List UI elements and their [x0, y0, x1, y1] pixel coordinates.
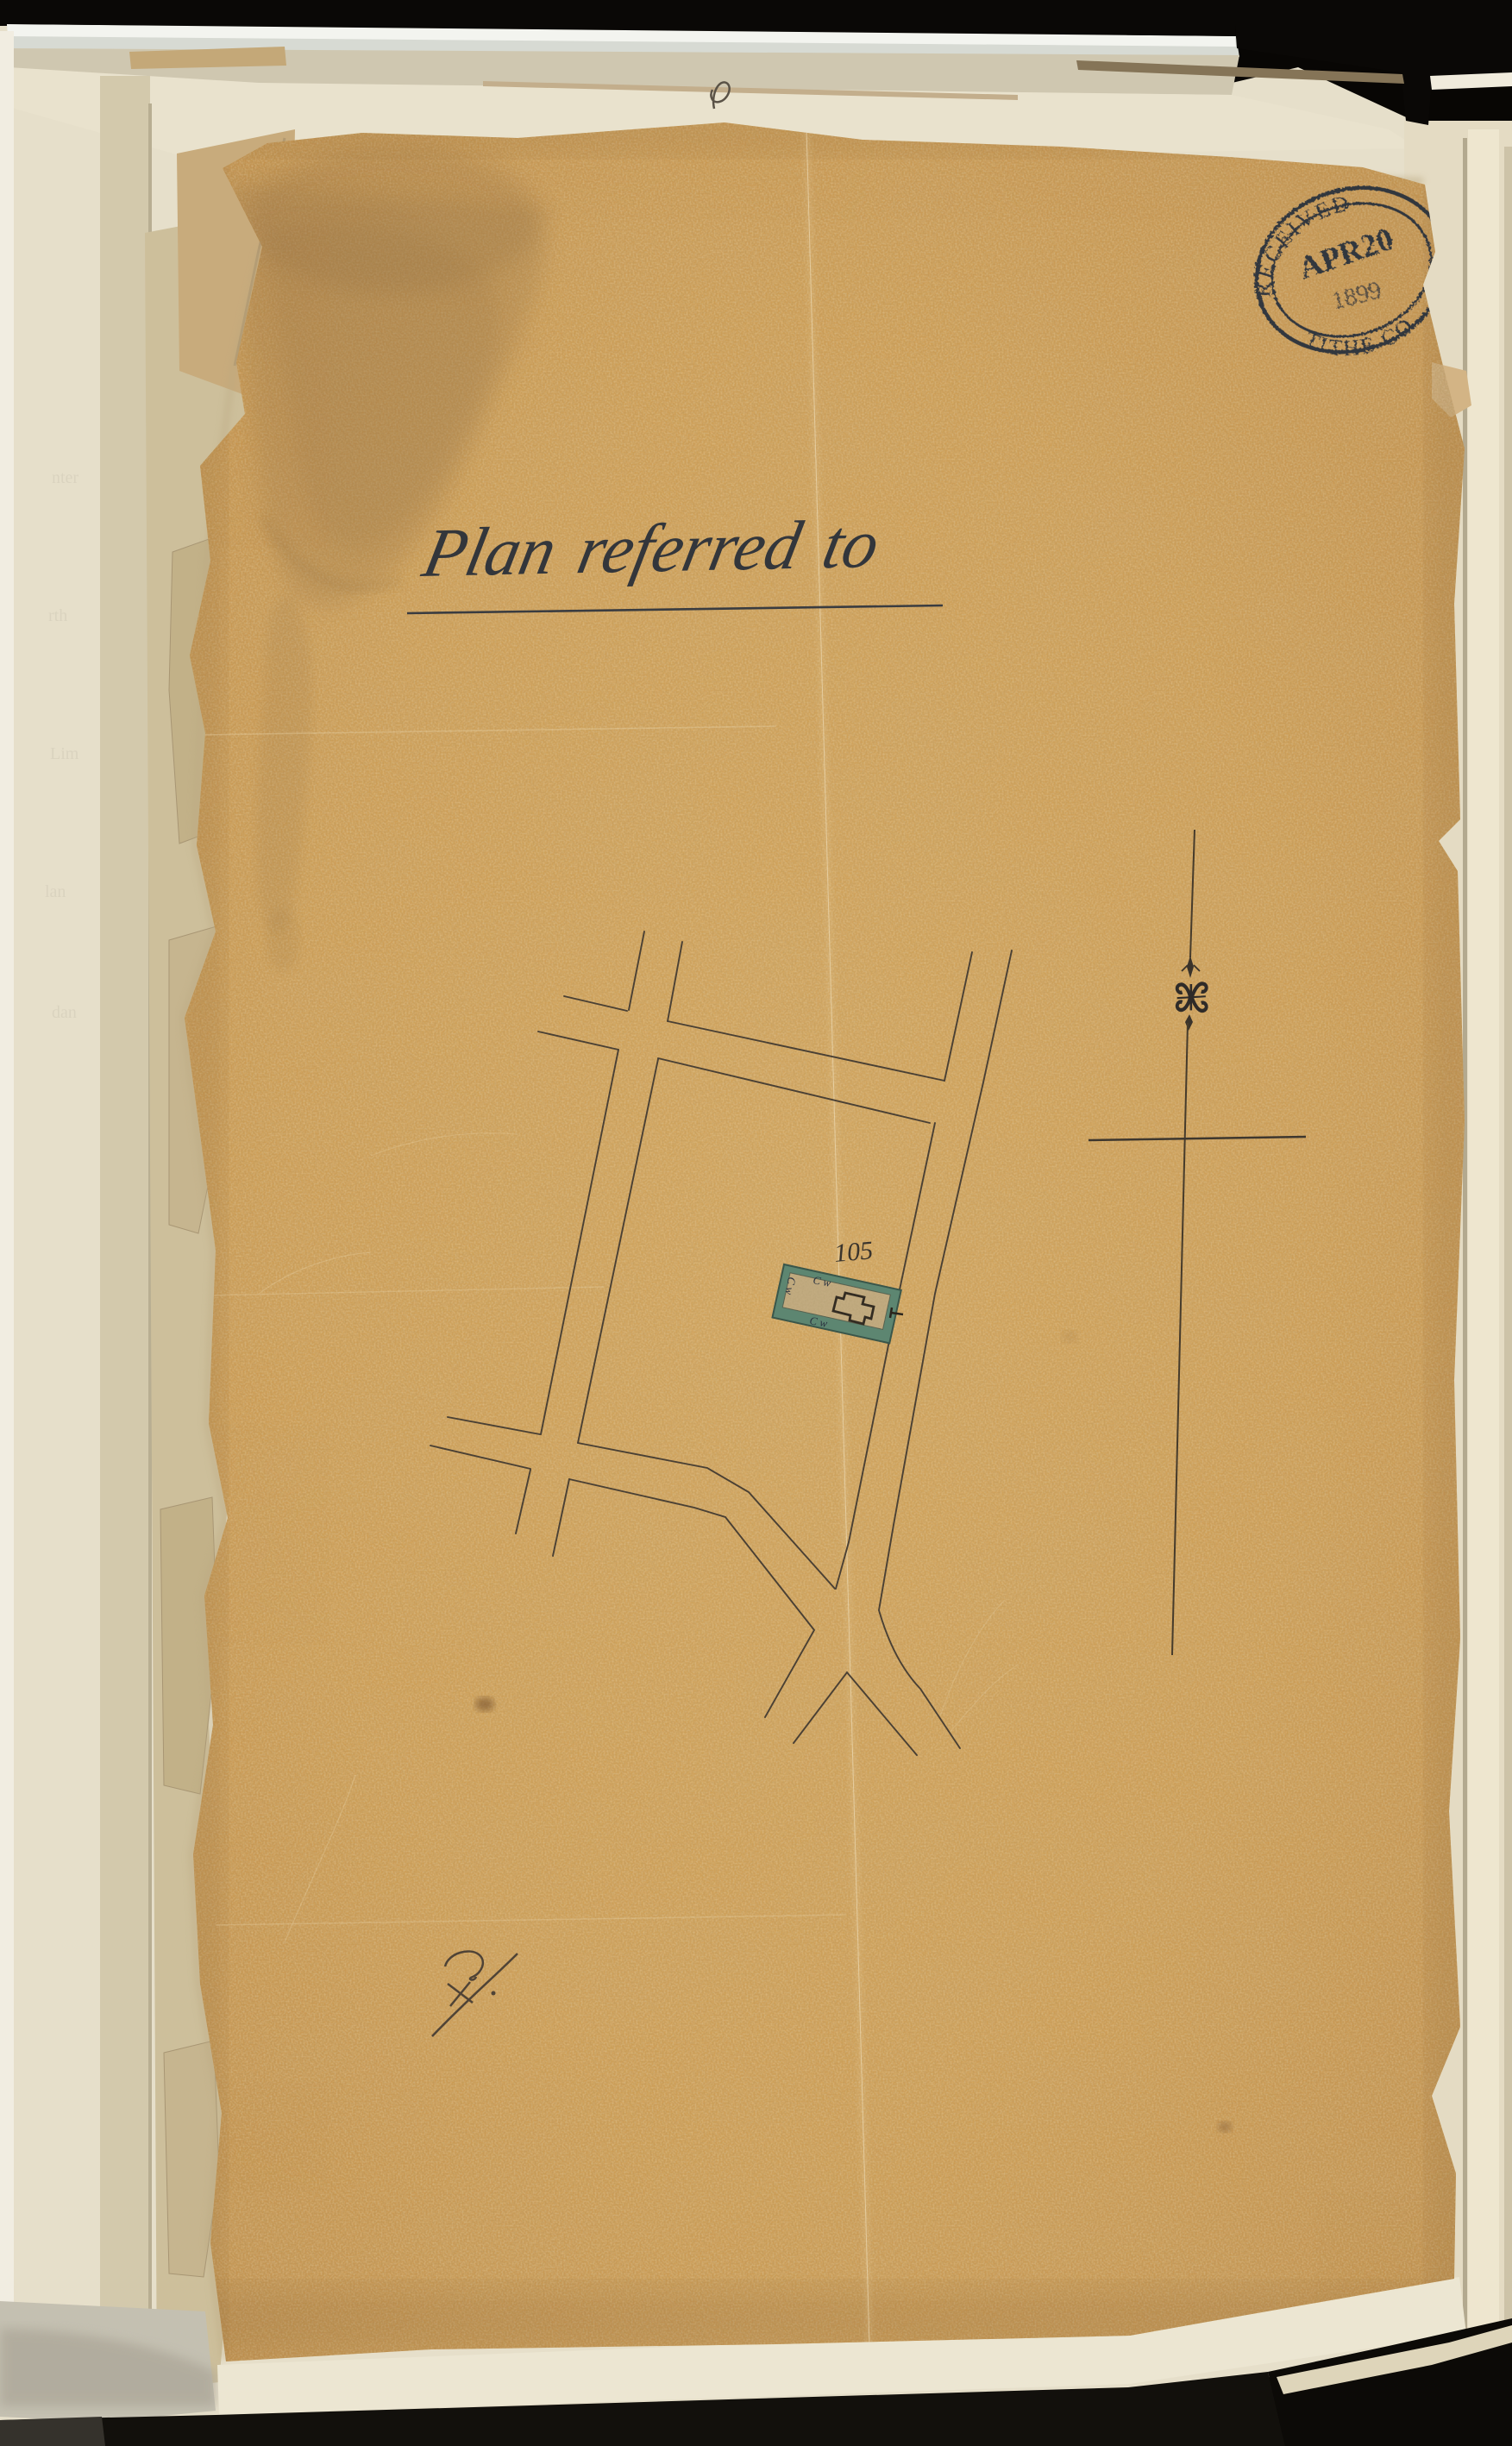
svg-text:lan: lan — [45, 882, 66, 901]
svg-text:rth: rth — [48, 606, 67, 625]
svg-text:Lim: Lim — [50, 744, 79, 763]
svg-text:105: 105 — [833, 1236, 875, 1268]
svg-text:Plan referred to: Plan referred to — [416, 505, 886, 592]
svg-text:dan: dan — [52, 1003, 77, 1022]
svg-text:nter: nter — [52, 468, 78, 487]
